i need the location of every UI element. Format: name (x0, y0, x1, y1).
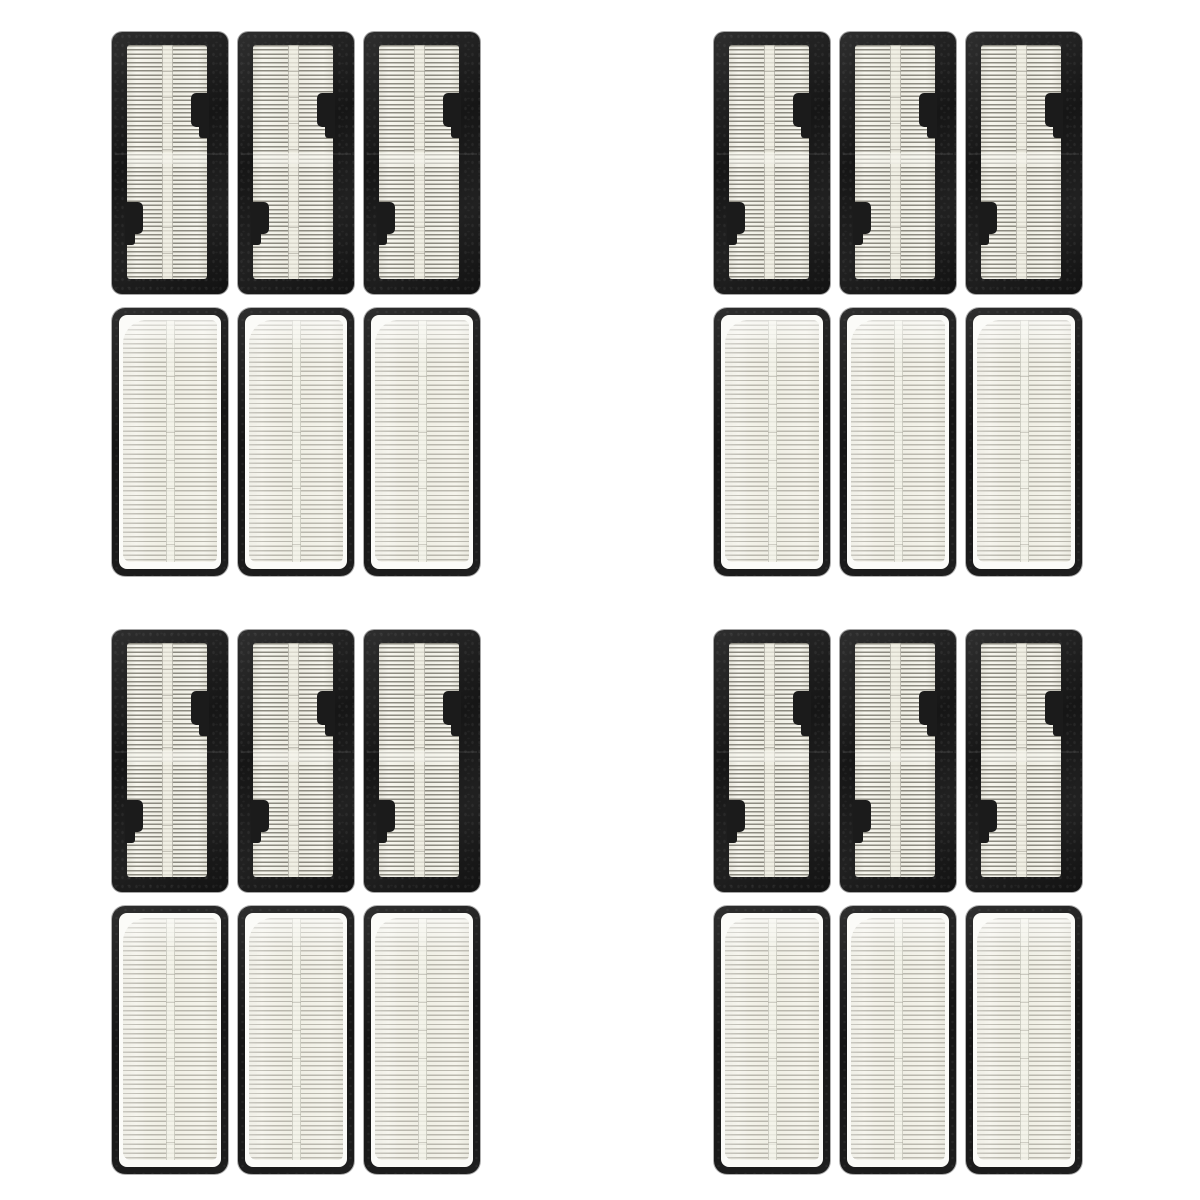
pleated-media (379, 45, 459, 279)
mounting-tab-left (727, 202, 745, 234)
filter-border-inner (721, 315, 823, 569)
pleated-media (981, 45, 1061, 279)
mounting-tab-left (377, 800, 395, 832)
pleated-media (851, 918, 945, 1160)
mounting-tab-right (191, 93, 209, 127)
hepa-filter-front-view (238, 32, 354, 294)
filter-border-inner (371, 913, 473, 1167)
hepa-filter-front-view (112, 32, 228, 294)
center-divider (1020, 918, 1029, 1160)
hepa-filter-back-view (112, 906, 228, 1174)
pleated-media (729, 45, 809, 279)
pleated-media (253, 45, 333, 279)
center-divider (894, 918, 903, 1160)
mounting-tab-right (317, 93, 335, 127)
pleated-media (851, 320, 945, 562)
center-divider (768, 918, 777, 1160)
pleated-media (123, 320, 217, 562)
back-filter-row (714, 906, 1082, 1174)
mounting-tab-left (251, 202, 269, 234)
pleated-media (249, 320, 343, 562)
hepa-filter-back-view (364, 308, 480, 576)
filter-border-inner (973, 913, 1075, 1167)
hepa-filter-back-view (238, 308, 354, 576)
filter-group-bottom-right (714, 630, 1082, 1174)
mounting-tab-left (125, 800, 143, 832)
product-photo (0, 0, 1200, 1200)
hepa-filter-front-view (238, 630, 354, 892)
center-divider (414, 45, 425, 279)
center-divider (414, 643, 425, 877)
front-filter-row (714, 630, 1082, 892)
mounting-tab-right (1045, 93, 1063, 127)
center-divider (292, 918, 301, 1160)
hepa-filter-front-view (112, 630, 228, 892)
hepa-filter-back-view (238, 906, 354, 1174)
front-filter-row (112, 32, 480, 294)
mounting-tab-left (125, 202, 143, 234)
hepa-filter-back-view (714, 906, 830, 1174)
pleated-media (725, 918, 819, 1160)
center-divider (418, 320, 427, 562)
center-divider (1016, 643, 1027, 877)
mounting-tab-left (727, 800, 745, 832)
mounting-tab-right (919, 691, 937, 725)
pleated-media (981, 643, 1061, 877)
mounting-tab-right (793, 691, 811, 725)
hepa-filter-front-view (840, 630, 956, 892)
filter-border-inner (119, 913, 221, 1167)
hepa-filter-front-view (714, 32, 830, 294)
center-divider (292, 320, 301, 562)
hepa-filter-back-view (714, 308, 830, 576)
pleated-media (855, 643, 935, 877)
pleated-media (729, 643, 809, 877)
filter-border-inner (371, 315, 473, 569)
filter-border-inner (847, 315, 949, 569)
hepa-filter-back-view (112, 308, 228, 576)
mounting-tab-right (1045, 691, 1063, 725)
mounting-tab-right (191, 691, 209, 725)
hepa-filter-back-view (364, 906, 480, 1174)
filter-border-inner (721, 913, 823, 1167)
mounting-tab-right (317, 691, 335, 725)
filter-group-top-right (714, 32, 1082, 576)
back-filter-row (714, 308, 1082, 576)
center-divider (162, 45, 173, 279)
center-divider (894, 320, 903, 562)
center-divider (1020, 320, 1029, 562)
pleated-media (977, 320, 1071, 562)
filter-border-inner (847, 913, 949, 1167)
pleated-media (249, 918, 343, 1160)
center-divider (764, 643, 775, 877)
center-divider (890, 643, 901, 877)
hepa-filter-front-view (966, 32, 1082, 294)
back-filter-row (112, 906, 480, 1174)
back-filter-row (112, 308, 480, 576)
mounting-tab-left (853, 202, 871, 234)
center-divider (418, 918, 427, 1160)
pleated-media (375, 918, 469, 1160)
pleated-media (123, 918, 217, 1160)
hepa-filter-front-view (966, 630, 1082, 892)
pleated-media (253, 643, 333, 877)
pleated-media (127, 643, 207, 877)
center-divider (288, 643, 299, 877)
filter-group-bottom-left (112, 630, 480, 1174)
center-divider (162, 643, 173, 877)
filter-border-inner (245, 315, 347, 569)
mounting-tab-left (853, 800, 871, 832)
front-filter-row (714, 32, 1082, 294)
mounting-tab-left (979, 202, 997, 234)
filter-border-inner (973, 315, 1075, 569)
hepa-filter-back-view (966, 906, 1082, 1174)
hepa-filter-back-view (840, 906, 956, 1174)
hepa-filter-back-view (966, 308, 1082, 576)
center-divider (768, 320, 777, 562)
filter-group-top-left (112, 32, 480, 576)
filter-border-inner (119, 315, 221, 569)
hepa-filter-front-view (364, 630, 480, 892)
mounting-tab-right (793, 93, 811, 127)
center-divider (166, 320, 175, 562)
mounting-tab-right (443, 93, 461, 127)
mounting-tab-right (919, 93, 937, 127)
hepa-filter-front-view (840, 32, 956, 294)
pleated-media (375, 320, 469, 562)
pleated-media (855, 45, 935, 279)
pleated-media (379, 643, 459, 877)
center-divider (1016, 45, 1027, 279)
center-divider (764, 45, 775, 279)
hepa-filter-front-view (714, 630, 830, 892)
center-divider (890, 45, 901, 279)
mounting-tab-left (979, 800, 997, 832)
hepa-filter-back-view (840, 308, 956, 576)
pleated-media (127, 45, 207, 279)
filter-border-inner (245, 913, 347, 1167)
mounting-tab-left (251, 800, 269, 832)
center-divider (288, 45, 299, 279)
pleated-media (977, 918, 1071, 1160)
hepa-filter-front-view (364, 32, 480, 294)
mounting-tab-right (443, 691, 461, 725)
front-filter-row (112, 630, 480, 892)
center-divider (166, 918, 175, 1160)
pleated-media (725, 320, 819, 562)
mounting-tab-left (377, 202, 395, 234)
